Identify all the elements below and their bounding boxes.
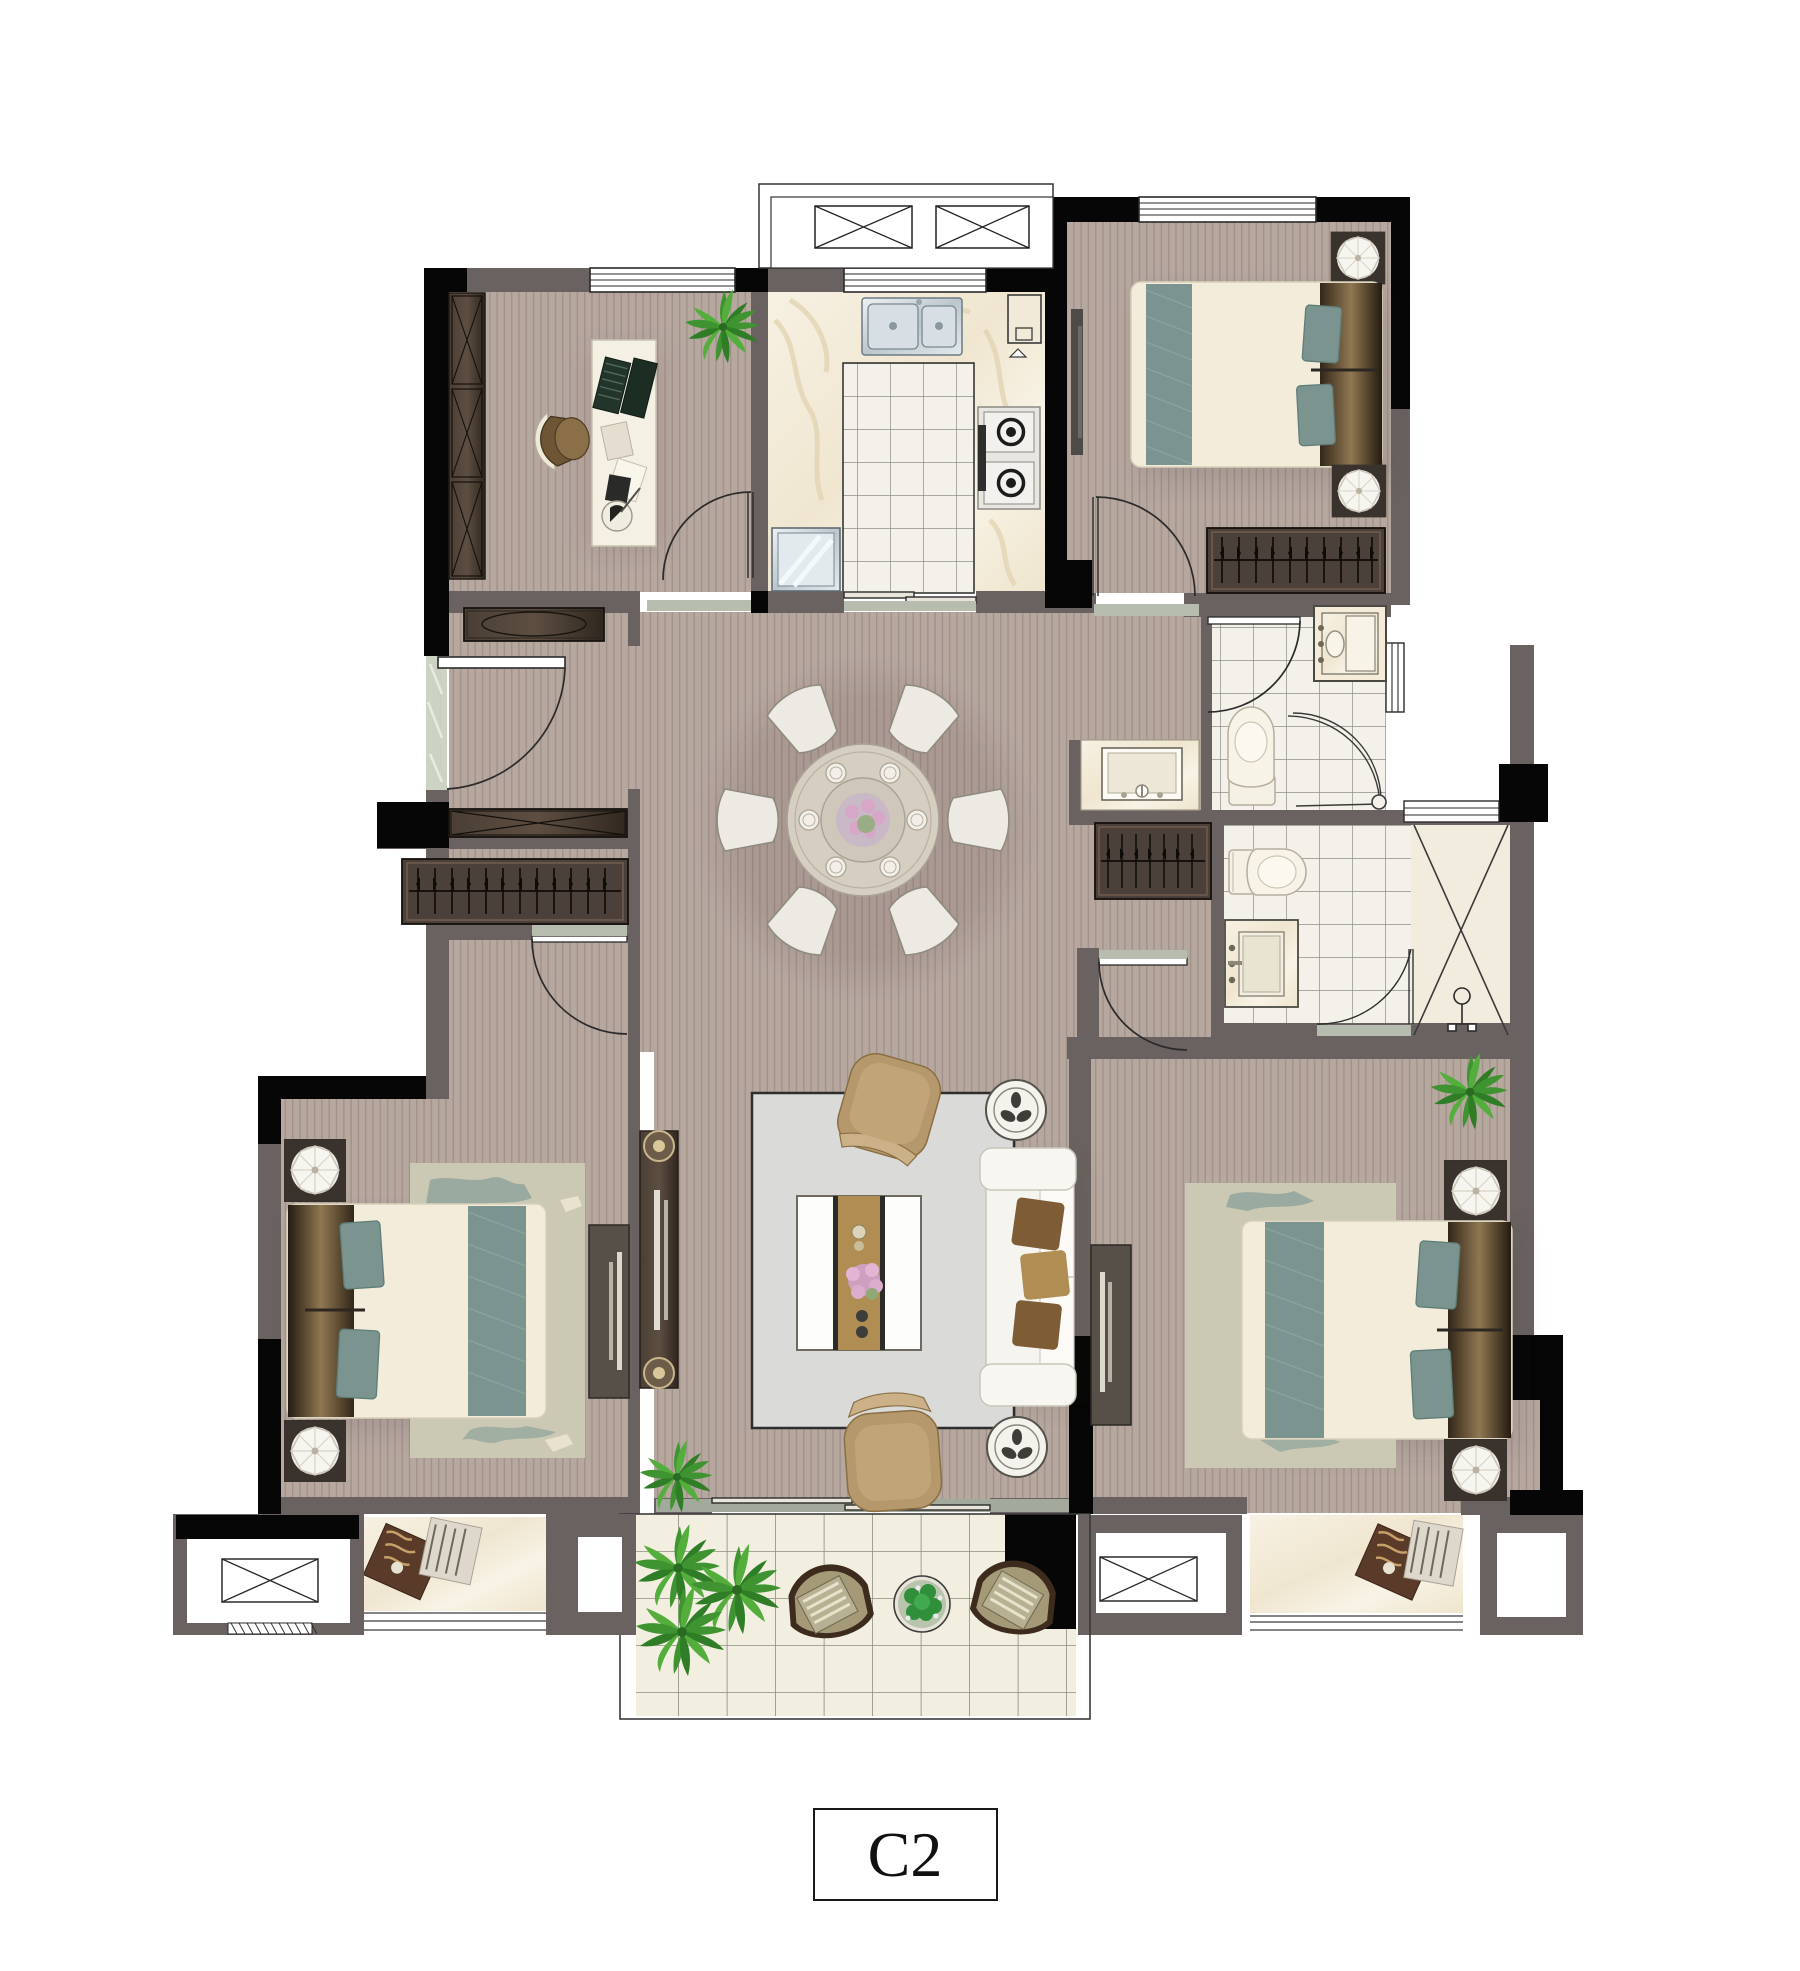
svg-text:C2: C2 <box>868 1819 943 1890</box>
